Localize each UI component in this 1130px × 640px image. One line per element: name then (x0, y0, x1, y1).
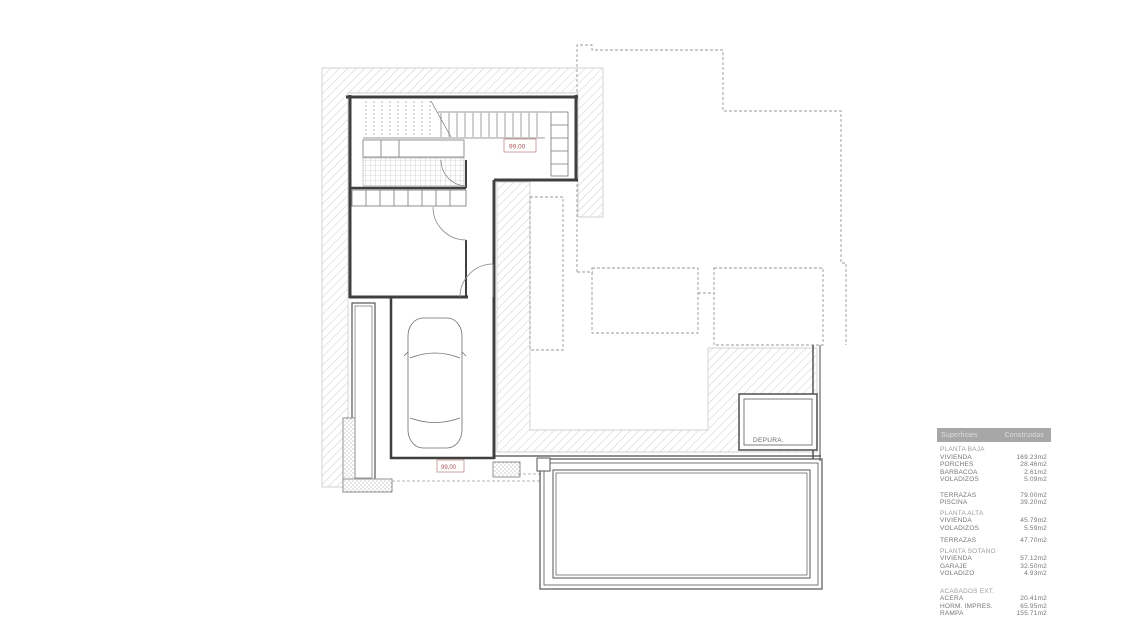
table-row: VOLADIZO 4.93m2 (940, 570, 1049, 578)
depuradora-box: DEPURA. (739, 394, 817, 450)
row-value: 4.93m2 (1024, 570, 1049, 578)
table-row: VOLADIZOS 5.59m2 (940, 525, 1049, 533)
level-label-upper: 99,00 (504, 139, 536, 152)
table-row: TERRAZAS 47.70m2 (940, 537, 1049, 545)
section-title: PLANTA BAJA (940, 446, 1049, 454)
section-title: PLANTA ALTA (940, 510, 1049, 518)
section-title: PLANTA SOTANO (940, 548, 1049, 556)
row-value: 20.41m2 (1020, 595, 1049, 603)
row-value: 57.12m2 (1020, 555, 1049, 563)
row-value: 45.79m2 (1020, 517, 1049, 525)
level-label-lower-text: 99,00 (441, 465, 457, 471)
table-row: ACERA 20.41m2 (940, 595, 1049, 603)
row-value: 65.95m2 (1020, 603, 1049, 611)
level-label-upper-text: 99,00 (509, 144, 526, 151)
row-value: 2.61m2 (1024, 469, 1049, 477)
car-top-view (404, 318, 466, 448)
table-row: GARAJE 32.50m2 (940, 563, 1049, 571)
section-planta-sotano: PLANTA SOTANO VIVIENDA 57.12m2 GARAJE 32… (937, 548, 1051, 578)
row-value: 5.09m2 (1024, 476, 1049, 484)
row-label: TERRAZAS (940, 492, 976, 500)
swimming-pool (537, 458, 822, 589)
table-row: TERRAZAS 79.00m2 (940, 492, 1049, 500)
row-label: VOLADIZO (940, 570, 974, 578)
surfaces-table: Superficies Construidas PLANTA BAJA VIVI… (937, 428, 1051, 618)
floor-plan-sheet: DEPURA. 99,00 99,00 Superficies Construi… (0, 0, 1130, 635)
section-terrazas-alta: TERRAZAS 47.70m2 (937, 537, 1051, 545)
planter-strip (352, 303, 375, 481)
row-label: RAMPA (940, 610, 964, 618)
row-label: VIVIENDA (940, 555, 972, 563)
table-row: VIVIENDA 57.12m2 (940, 555, 1049, 563)
table-row: BARBACOA 2.61m2 (940, 469, 1049, 477)
row-value: 79.00m2 (1020, 492, 1049, 500)
row-label: VIVIENDA (940, 517, 972, 525)
row-label: VIVIENDA (940, 454, 972, 462)
row-value: 47.70m2 (1020, 537, 1049, 545)
kitchen-counter (363, 140, 464, 157)
row-label: PORCHES (940, 461, 974, 469)
row-value: 32.50m2 (1020, 563, 1049, 571)
table-row: VIVIENDA 169.23m2 (940, 454, 1049, 462)
wardrobe-cells (352, 190, 466, 206)
row-value: 169.23m2 (1016, 454, 1049, 462)
row-label: TERRAZAS (940, 537, 976, 545)
row-label: GARAJE (940, 563, 967, 571)
section-acabados-ext: ACABADOS EXT. ACERA 20.41m2 HORM. IMPRES… (937, 588, 1051, 618)
row-label: PISCINA (940, 499, 967, 507)
header-superficies: Superficies (941, 432, 978, 439)
row-label: HORM. IMPRES. (940, 603, 993, 611)
section-title: ACABADOS EXT. (940, 588, 1049, 596)
table-row: VOLADIZOS 5.09m2 (940, 476, 1049, 484)
section-terrazas-piscina: TERRAZAS 79.00m2 PISCINA 39.20m2 (937, 492, 1051, 507)
depuradora-label: DEPURA. (753, 437, 784, 444)
row-value: 28.46m2 (1020, 461, 1049, 469)
table-row: HORM. IMPRES. 65.95m2 (940, 603, 1049, 611)
table-row: PORCHES 28.46m2 (940, 461, 1049, 469)
section-planta-alta: PLANTA ALTA VIVIENDA 45.79m2 VOLADIZOS 5… (937, 510, 1051, 533)
row-value: 5.59m2 (1024, 525, 1049, 533)
upper-floor-dashed-outline (530, 45, 846, 350)
row-value: 39.20m2 (1020, 499, 1049, 507)
header-construidas: Construidas (1004, 432, 1044, 439)
row-label: BARBACOA (940, 469, 978, 477)
table-row: VIVIENDA 45.79m2 (940, 517, 1049, 525)
tiled-floor-area (363, 158, 464, 186)
row-label: VOLADIZOS (940, 476, 979, 484)
closet-cells (551, 112, 568, 176)
row-label: VOLADIZOS (940, 525, 979, 533)
table-row: RAMPA 155.71m2 (940, 610, 1049, 618)
row-value: 155.71m2 (1016, 610, 1049, 618)
level-label-lower: 99,00 (437, 460, 464, 472)
row-label: ACERA (940, 595, 963, 603)
surfaces-table-header: Superficies Construidas (937, 428, 1051, 442)
table-row: PISCINA 39.20m2 (940, 499, 1049, 507)
staircase (363, 101, 550, 138)
section-planta-baja: PLANTA BAJA VIVIENDA 169.23m2 PORCHES 28… (937, 446, 1051, 484)
